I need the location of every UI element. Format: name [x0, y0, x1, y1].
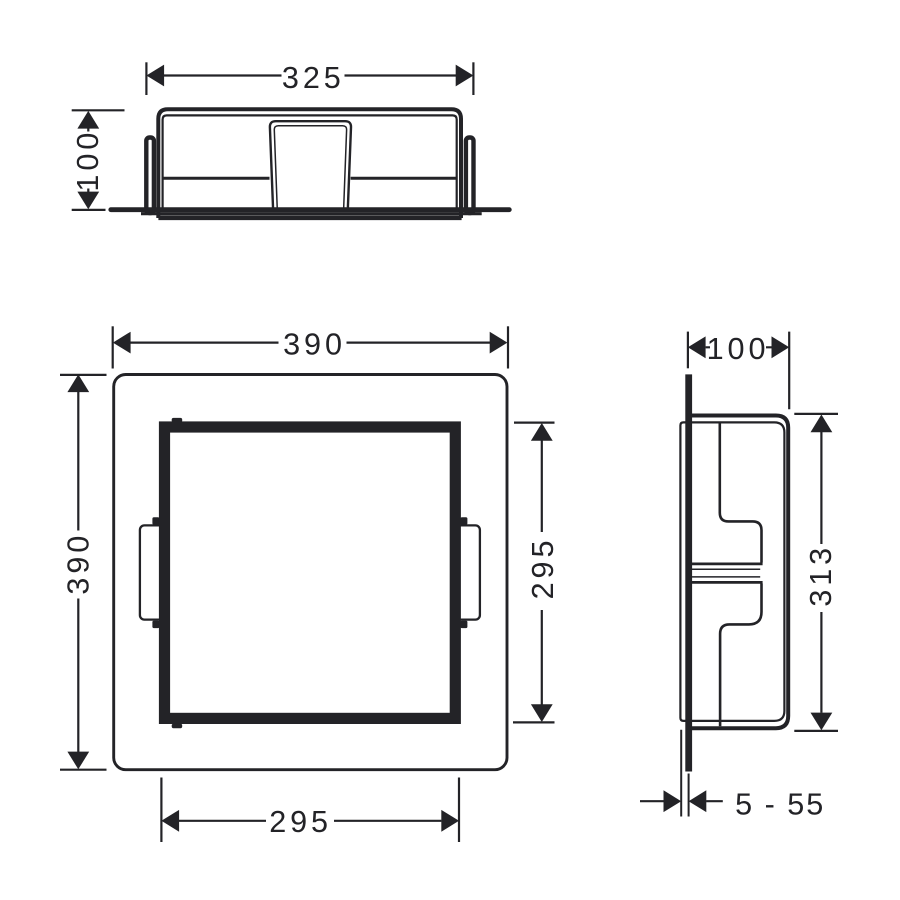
svg-text:325: 325: [282, 61, 345, 95]
svg-text:5 - 55: 5 - 55: [735, 787, 825, 821]
svg-text:100: 100: [707, 332, 770, 366]
svg-text:295: 295: [269, 805, 332, 839]
svg-text:100: 100: [71, 129, 105, 192]
svg-text:390: 390: [283, 327, 346, 361]
svg-text:295: 295: [526, 537, 560, 600]
svg-text:390: 390: [62, 532, 96, 595]
svg-text:313: 313: [804, 544, 838, 607]
